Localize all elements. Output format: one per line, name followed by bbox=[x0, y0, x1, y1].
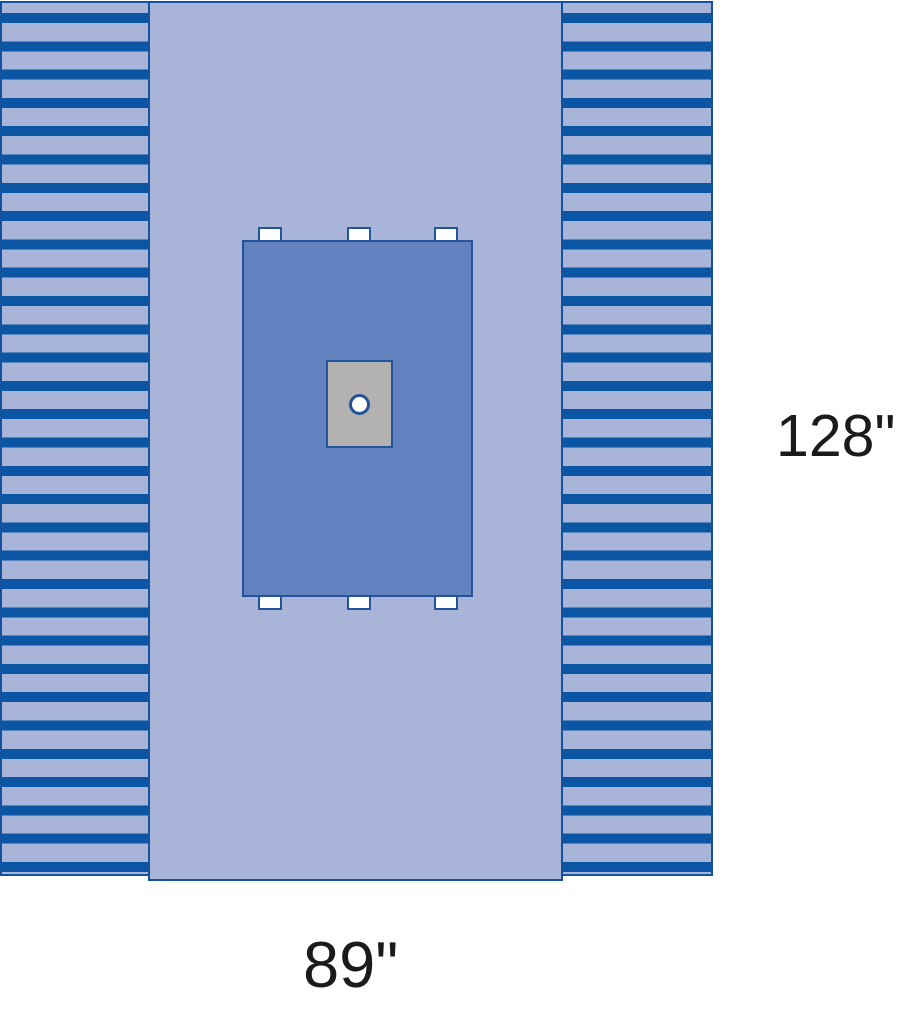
tape-tab-bottom-center bbox=[347, 595, 371, 610]
width-dimension-label: 89" bbox=[303, 932, 398, 997]
fenestration-patch bbox=[326, 360, 393, 448]
fenestration-hole bbox=[349, 394, 370, 415]
right-fanfold-panel bbox=[563, 1, 713, 876]
tape-tab-bottom-right bbox=[434, 595, 458, 610]
height-dimension-label: 128" bbox=[776, 407, 895, 466]
drape-diagram-canvas: 128" 89" bbox=[0, 0, 900, 1019]
left-fanfold-panel bbox=[0, 1, 148, 876]
tape-tab-bottom-left bbox=[258, 595, 282, 610]
